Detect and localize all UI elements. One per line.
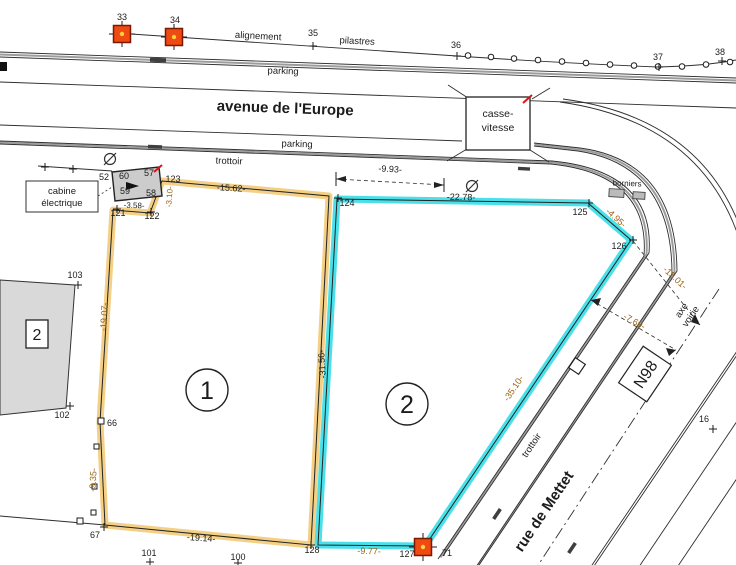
dim-label: -19.07-: [98, 302, 109, 331]
point-label: 100: [230, 552, 245, 562]
avenue-name: avenue de l'Europe: [216, 98, 353, 120]
pilastre-circle: [511, 56, 517, 62]
arrow-icon: [434, 182, 444, 188]
point-label: 59: [120, 186, 130, 196]
point-label: 66: [107, 418, 117, 428]
dim-label: -22.78-: [447, 192, 476, 202]
manhole-icon: [466, 180, 478, 192]
pilastre-circle: [465, 53, 471, 59]
point-label: 128: [304, 545, 319, 555]
road-line-core: [0, 55, 736, 81]
tick-101: [146, 558, 154, 565]
pilastre-circle: [631, 63, 637, 69]
point-label: 60: [119, 171, 129, 181]
point-label: 57: [144, 168, 154, 178]
line-label-mark: [518, 167, 530, 171]
point-label: 36: [451, 40, 461, 50]
leader-line: [98, 187, 112, 196]
point-label: 101: [141, 548, 156, 558]
lot2-number: 2: [400, 391, 414, 419]
dim-label: -15.62-: [217, 182, 246, 193]
point-label: 35: [308, 28, 318, 38]
road-line: [0, 125, 462, 141]
pilastres-label: pilastres: [339, 35, 375, 48]
bornier-box: [633, 192, 645, 200]
speed-bump-label: vitesse: [482, 122, 515, 134]
dim-label: -9.93-: [378, 163, 402, 174]
point-label: 103: [67, 270, 82, 280]
parking-label: parking: [267, 65, 299, 77]
lot1-boundary-band: [100, 181, 329, 545]
dim-line: [336, 179, 444, 185]
chamber-square: [569, 358, 586, 375]
arrow-icon: [666, 348, 676, 356]
dim-label: -3.10-: [164, 186, 175, 208]
dim-label: -9.35-: [87, 468, 98, 492]
dim-7-69: [591, 298, 676, 356]
plan-drawing: N98 33 34 35 36 37 38 alignement pilastr…: [0, 0, 736, 565]
parking-label: parking: [281, 138, 313, 150]
lot1-number: 1: [200, 377, 214, 405]
marker-center-dot: [120, 32, 124, 36]
neighbor-number: 2: [33, 327, 42, 344]
dim-label: -9.77-: [357, 546, 381, 557]
lot2-boundary-band: [318, 199, 631, 546]
road-line: [0, 57, 736, 83]
line-label-mark: [492, 508, 502, 520]
edge-marker-square: [0, 62, 7, 71]
tick-35: [309, 42, 317, 50]
point-label: 102: [54, 410, 69, 420]
point-label: 37: [653, 52, 663, 62]
line-label-rect: [492, 508, 502, 520]
pilastre-circle: [703, 62, 709, 68]
pilastre-circle: [559, 59, 565, 65]
point-label: 16: [699, 414, 709, 424]
point-label: 67: [90, 530, 100, 540]
point-label: 127: [399, 549, 414, 559]
point-label: 126: [611, 241, 626, 251]
survey-plan: N98 33 34 35 36 37 38 alignement pilastr…: [0, 0, 736, 565]
n98-road-sign: N98: [619, 346, 672, 401]
pilastre-circle: [607, 62, 613, 68]
road-line: [0, 82, 736, 108]
point-label: 38: [715, 47, 725, 57]
marker-center-dot: [421, 545, 425, 549]
pilastre-circle: [488, 54, 494, 60]
dim-label: -3.58-: [123, 201, 145, 211]
boundary-marker-33: [109, 21, 135, 47]
fence-post-square: [94, 444, 99, 449]
fence-post-square: [98, 418, 104, 424]
point-label: 123: [165, 174, 180, 184]
line-label-mark: [567, 542, 577, 554]
boundary-marker-34: [161, 24, 187, 50]
boundary-line-bottom-left: [0, 516, 105, 525]
point-label: 71: [442, 548, 452, 558]
inspection-chamber-icon: [569, 358, 586, 375]
point-label: 124: [339, 198, 354, 208]
point-label: 52: [99, 172, 109, 182]
trottoir-label: trottoir: [215, 156, 242, 168]
line-label-rect: [567, 542, 577, 554]
marker-center-dot: [172, 35, 176, 39]
tick-16: [709, 425, 717, 433]
fence-post-square: [77, 518, 83, 524]
pilastre-circle: [535, 57, 541, 63]
arrow-icon: [336, 176, 346, 182]
cabine-label: électrique: [41, 198, 82, 209]
bornier-box: [609, 189, 624, 198]
cabine-label: cabine: [48, 186, 76, 197]
rue-de-mettet-name: rue de Mettet: [511, 468, 577, 555]
speed-bump-flare: [532, 88, 550, 99]
tick-38: [718, 57, 726, 65]
point-label: 33: [117, 12, 127, 22]
point-label: 58: [146, 188, 156, 198]
survey-ticks: [66, 42, 726, 565]
dim-label: -31.56-: [316, 350, 327, 379]
line-label-mark: [148, 145, 162, 149]
axe-voirie-label: axe voirie: [671, 298, 702, 329]
tick-102: [66, 402, 74, 410]
speed-bump-label: casse-: [483, 108, 514, 120]
point-label: 122: [144, 211, 159, 221]
point-label: 125: [572, 207, 587, 217]
pilastre-circle: [679, 64, 685, 70]
pilastre-circle: [727, 59, 733, 65]
lot1-boundary-line: [100, 181, 329, 545]
manhole-icon: [104, 153, 116, 165]
pilastre-circles: [465, 53, 733, 70]
dim-label: -7.69-: [622, 311, 647, 331]
speed-bump-flare: [448, 85, 468, 98]
line-label-mark: [150, 58, 166, 63]
dim-label: -19.14-: [187, 532, 216, 544]
lot2-boundary-line: [318, 199, 631, 546]
tick-36: [453, 52, 461, 60]
pilastre-circle: [583, 60, 589, 66]
road-line: [0, 52, 736, 78]
point-label: 34: [170, 15, 180, 25]
dim-9-93: [336, 172, 444, 192]
outer-road-line: [610, 361, 736, 565]
borniers-label: borniers: [612, 178, 641, 188]
fence-post-square: [91, 510, 96, 515]
